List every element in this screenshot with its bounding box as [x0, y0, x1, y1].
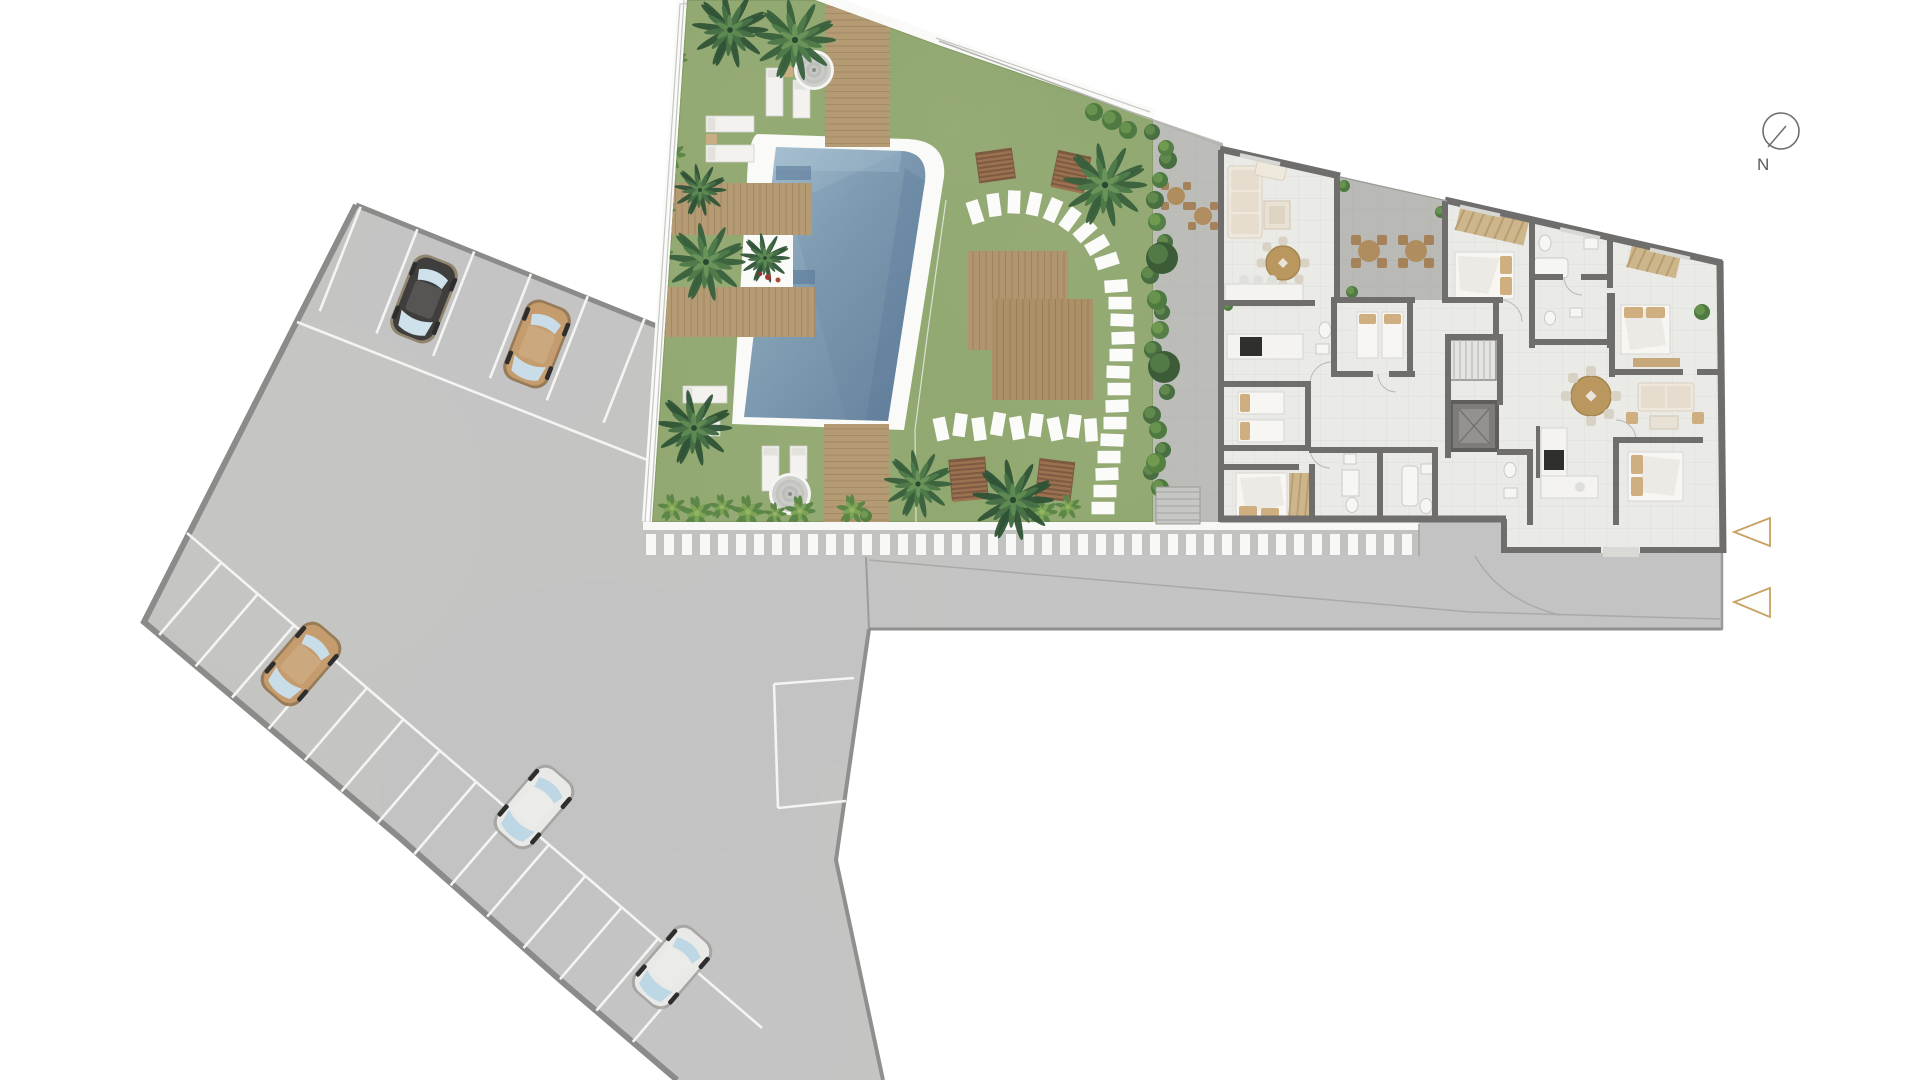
svg-text:N: N [1757, 155, 1769, 174]
